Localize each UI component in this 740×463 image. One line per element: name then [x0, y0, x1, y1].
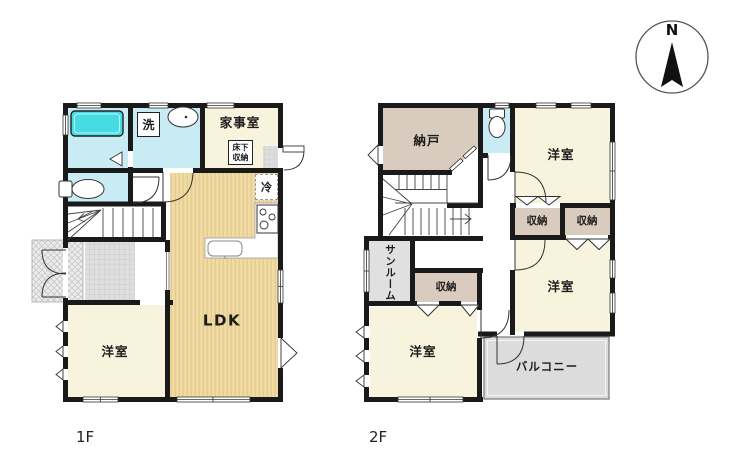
floor1-label: 1F: [76, 428, 94, 446]
utility-room-label: 家事室: [220, 117, 261, 130]
stove: [257, 205, 278, 233]
western-ne-label: 洋室: [547, 149, 574, 162]
balcony-label: バルコニー: [516, 361, 578, 373]
western-e-label: 洋室: [547, 281, 574, 294]
floor2-label: 2F: [369, 428, 387, 446]
closet-b-label: 収納: [577, 216, 598, 227]
entry-tile: [85, 242, 135, 300]
backdoor-leaf: [283, 146, 304, 152]
closet-c-label: 収納: [436, 282, 457, 293]
toilet-bowl-2f: [489, 117, 505, 138]
western-sw-label: 洋室: [409, 346, 436, 359]
sunroom-label: サンルーム: [377, 241, 398, 305]
closet-a-label: 収納: [527, 216, 548, 227]
kitchen-sink: [208, 241, 242, 256]
refrigerator-label: 冷: [261, 179, 272, 195]
casement-windows-1f: [56, 321, 63, 380]
laundry-machine-label: 洗: [137, 112, 160, 137]
swing-window-ldk: [281, 338, 297, 368]
underfloor-storage-line1: 床下: [233, 143, 249, 152]
underfloor-storage-line2: 収納: [233, 153, 249, 162]
porch: [32, 240, 83, 302]
toilet-bowl-1f: [72, 180, 104, 199]
ldk-label: LDK: [203, 314, 241, 329]
floorplan-canvas: N 洗 家事室 床下 収納 冷 LDK 洋室 1F 納戸 洋室 収納 収納 サン…: [0, 0, 740, 463]
toilet-tank-1f: [59, 181, 72, 197]
storeroom-label: 納戸: [413, 135, 440, 148]
bathtub: [71, 111, 123, 136]
underfloor-storage-box: 床下 収納: [228, 140, 253, 165]
floor1-plan: [25, 95, 315, 415]
laundry-label: 洗: [142, 116, 154, 133]
sliding-door-entry: [167, 252, 170, 290]
refrigerator-box: 冷: [255, 174, 278, 200]
compass-north-label: N: [666, 21, 679, 39]
western-room-1f-label: 洋室: [101, 346, 128, 359]
vanity-sink: [168, 107, 198, 127]
backdoor-tile: [263, 146, 280, 169]
vanity-faucet: [185, 116, 188, 119]
stairs-1f: [68, 208, 153, 240]
